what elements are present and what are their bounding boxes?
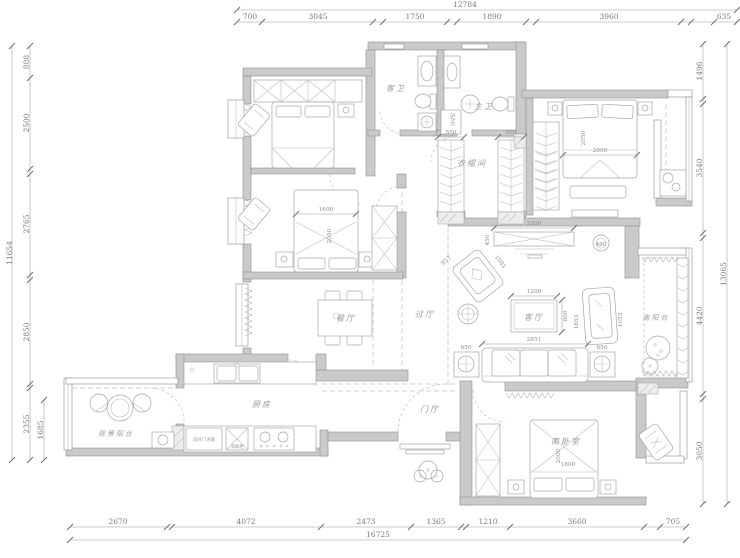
- dim-bot-4: 1210: [478, 517, 497, 526]
- entry-decoration: [400, 444, 450, 482]
- dim-rod-right: 550: [505, 130, 516, 136]
- door-arc-view-balcony: [150, 388, 184, 422]
- room-living: 2200 450 480 957 1081 客厅 1200 800 1653 9…: [440, 221, 624, 382]
- cloakroom-label: 衣帽间: [457, 159, 487, 168]
- room-view-balcony: 观景阳台: [86, 390, 174, 448]
- dim-bed2-width: 1600: [319, 207, 334, 213]
- door-arc-south-bedroom: [473, 390, 505, 422]
- dim-table-d: 800: [563, 310, 569, 321]
- floor-plan-svg: 1600 2050 客卫 洗衣机 主卫 550 550 衣帽间 2000 205…: [0, 0, 740, 554]
- dim-bot-1: 4072: [236, 517, 255, 526]
- south-bedroom-label: 南卧室: [551, 437, 581, 446]
- dim-right-1: 3540: [695, 158, 704, 177]
- dim-top-0: 700: [243, 12, 258, 21]
- dim-top-2: 1750: [405, 12, 424, 21]
- dim-left-0: 888: [22, 55, 31, 70]
- south-balcony-label: 南阳台: [643, 314, 670, 322]
- room-dining: 餐厅: [318, 291, 372, 345]
- dim-left-3: 2850: [22, 322, 31, 341]
- dim-bed2-length: 2050: [327, 228, 333, 243]
- dim-left-1: 2500: [22, 113, 31, 132]
- dim-bottom-total: 16725: [366, 530, 390, 539]
- kitchen-label: 厨房: [252, 400, 272, 409]
- dim-top-4: 3960: [599, 12, 618, 21]
- dim-sofa-w: 2851: [527, 337, 542, 343]
- dim-table-w: 1200: [527, 289, 542, 295]
- living-label: 客厅: [524, 313, 544, 322]
- dim-bot-5: 3660: [567, 517, 586, 526]
- dim-bot-2: 2473: [356, 517, 375, 526]
- dim-master-bed-width: 2000: [593, 148, 608, 154]
- dim-end-table-right: 650: [596, 345, 607, 351]
- dim-left-2: 2765: [22, 214, 31, 233]
- dim-tv-depth: 450: [485, 234, 491, 245]
- dim-top-total: 12784: [453, 0, 477, 9]
- sterilizer-label: 消毒柜: [230, 443, 244, 450]
- foyer-label: 门厅: [420, 405, 440, 414]
- dim-rod-left: 550: [445, 130, 456, 136]
- dim-armchair-left-w: 957: [440, 255, 453, 267]
- dim-armchair-left-d: 1081: [493, 255, 507, 270]
- dim-top-1: 3045: [308, 12, 327, 21]
- room-bedroom2: 1600 2050: [237, 190, 397, 272]
- dim-stool: 480: [595, 242, 606, 248]
- dim-right-total: 13065: [719, 262, 728, 286]
- dim-south-bed-width: 1800: [561, 462, 576, 468]
- dining-label: 餐厅: [336, 314, 356, 323]
- dim-left-4: 2355: [22, 414, 31, 433]
- view-balcony-label: 观景阳台: [98, 430, 134, 438]
- dim-right-2: 4420: [695, 306, 704, 325]
- dim-right-0: 1496: [695, 61, 704, 80]
- floor-plan-page: 1600 2050 客卫 洗衣机 主卫 550 550 衣帽间 2000 205…: [0, 0, 740, 554]
- dim-left-total: 11654: [5, 241, 14, 265]
- dim-left-inner: 1685: [36, 420, 45, 439]
- room-kitchen: 双开门冰箱 消毒柜 厨房: [172, 362, 316, 452]
- dim-armchair-right-d: 1053: [618, 312, 624, 327]
- dim-end-table-left: 650: [460, 345, 471, 351]
- dim-right-3: 3050: [695, 441, 704, 460]
- guest-bath-label: 客卫: [386, 84, 406, 93]
- hallway-label: 过厅: [415, 310, 435, 319]
- washer-label: 洗衣机: [449, 113, 456, 127]
- dim-sofa-side: 1653: [574, 314, 580, 329]
- dim-top-3: 1890: [482, 12, 501, 21]
- dim-bot-0: 2670: [108, 517, 127, 526]
- sofa-icon: [482, 348, 588, 382]
- room-bedroom1: [237, 80, 362, 168]
- dim-bot-3: 1365: [426, 517, 445, 526]
- room-master-bath: 洗衣机 主卫: [441, 56, 514, 134]
- room-south-balcony: 南阳台: [642, 258, 688, 378]
- dim-top-5: 635: [717, 12, 732, 21]
- master-bath-label: 主卫: [474, 102, 494, 111]
- room-guest-bath: 客卫: [386, 56, 436, 131]
- fridge-label: 双开门冰箱: [193, 436, 216, 443]
- room-cloakroom: 550 550 衣帽间: [435, 130, 527, 224]
- dim-bot-6: 705: [666, 517, 681, 526]
- dim-tv-width: 2200: [527, 221, 542, 227]
- armchair-right-icon: [582, 287, 618, 345]
- dim-master-bed-length: 2050: [581, 130, 587, 145]
